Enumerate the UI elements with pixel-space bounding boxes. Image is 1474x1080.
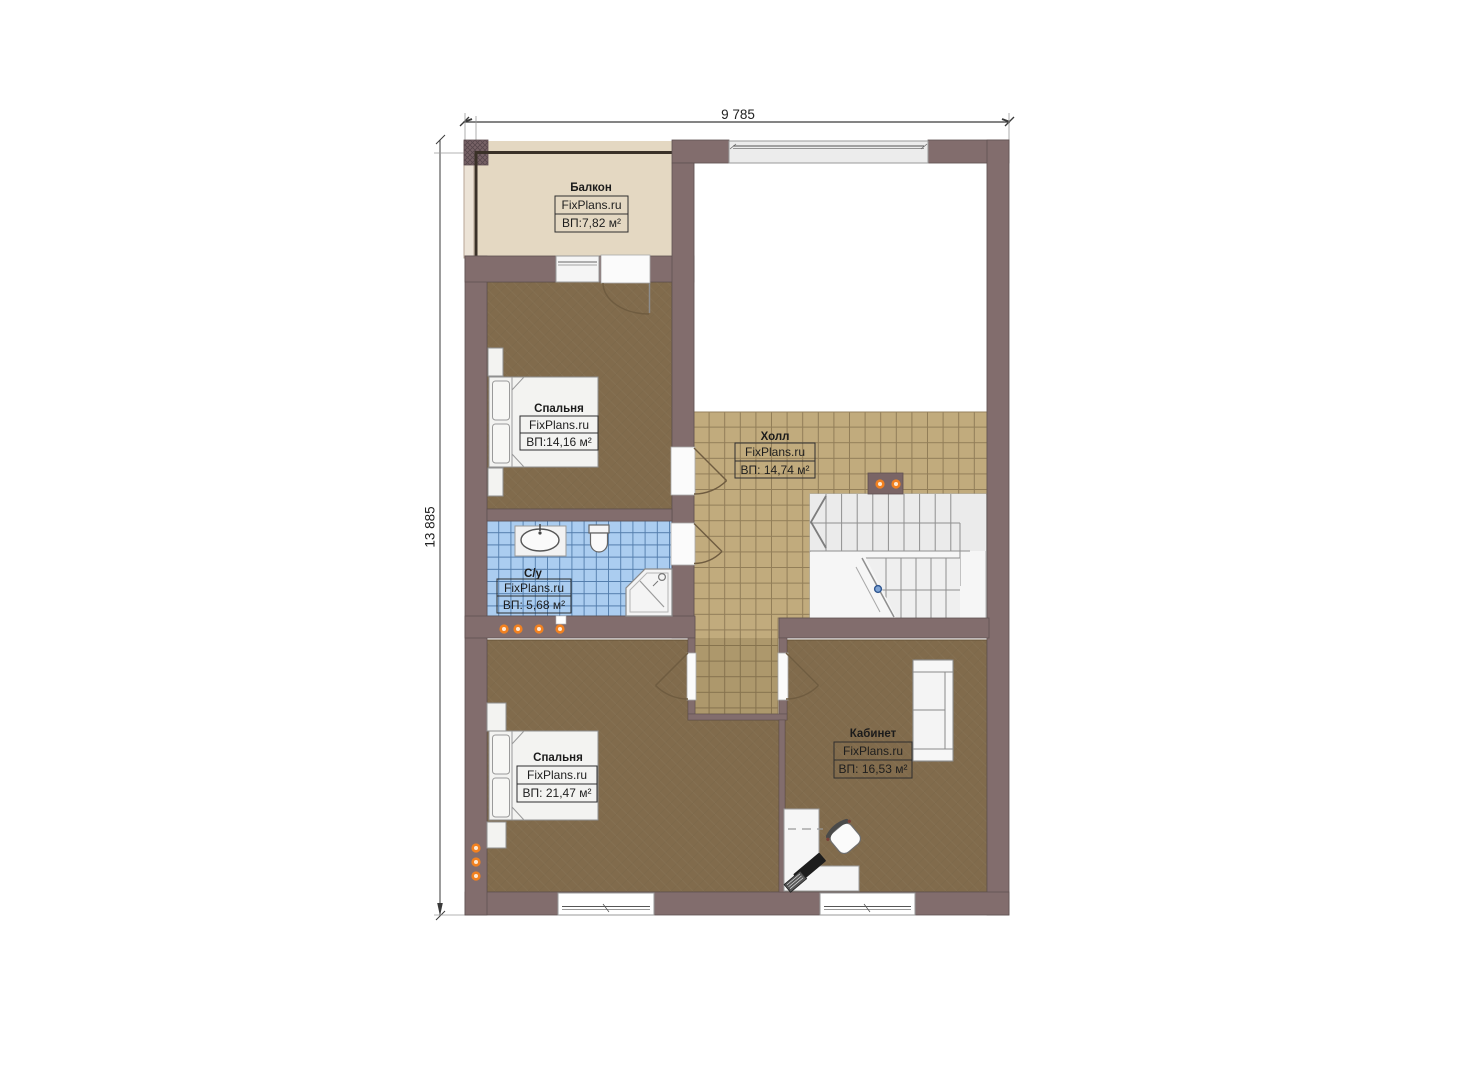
svg-text:FixPlans.ru: FixPlans.ru bbox=[504, 581, 564, 595]
svg-text:9 785: 9 785 bbox=[721, 107, 755, 122]
svg-text:ВП: 21,47 м²: ВП: 21,47 м² bbox=[523, 786, 592, 800]
svg-text:ВП:14,16 м²: ВП:14,16 м² bbox=[526, 435, 592, 449]
svg-text:Спальня: Спальня bbox=[533, 752, 583, 764]
svg-text:FixPlans.ru: FixPlans.ru bbox=[529, 418, 589, 432]
svg-text:ВП: 16,53 м²: ВП: 16,53 м² bbox=[839, 762, 908, 776]
svg-text:FixPlans.ru: FixPlans.ru bbox=[843, 744, 903, 758]
svg-text:FixPlans.ru: FixPlans.ru bbox=[561, 198, 621, 212]
svg-text:13 885: 13 885 bbox=[423, 506, 438, 547]
svg-text:FixPlans.ru: FixPlans.ru bbox=[745, 445, 805, 459]
svg-text:ВП: 14,74 м²: ВП: 14,74 м² bbox=[741, 463, 810, 477]
svg-text:С/у: С/у bbox=[524, 568, 543, 580]
svg-text:Кабинет: Кабинет bbox=[850, 728, 897, 740]
svg-text:Балкон: Балкон bbox=[570, 182, 612, 194]
svg-text:FixPlans.ru: FixPlans.ru bbox=[527, 768, 587, 782]
svg-text:ВП: 5,68 м²: ВП: 5,68 м² bbox=[503, 598, 565, 612]
svg-text:ВП:7,82 м²: ВП:7,82 м² bbox=[562, 216, 621, 230]
svg-text:Спальня: Спальня bbox=[534, 403, 584, 415]
svg-text:Холл: Холл bbox=[761, 431, 790, 443]
